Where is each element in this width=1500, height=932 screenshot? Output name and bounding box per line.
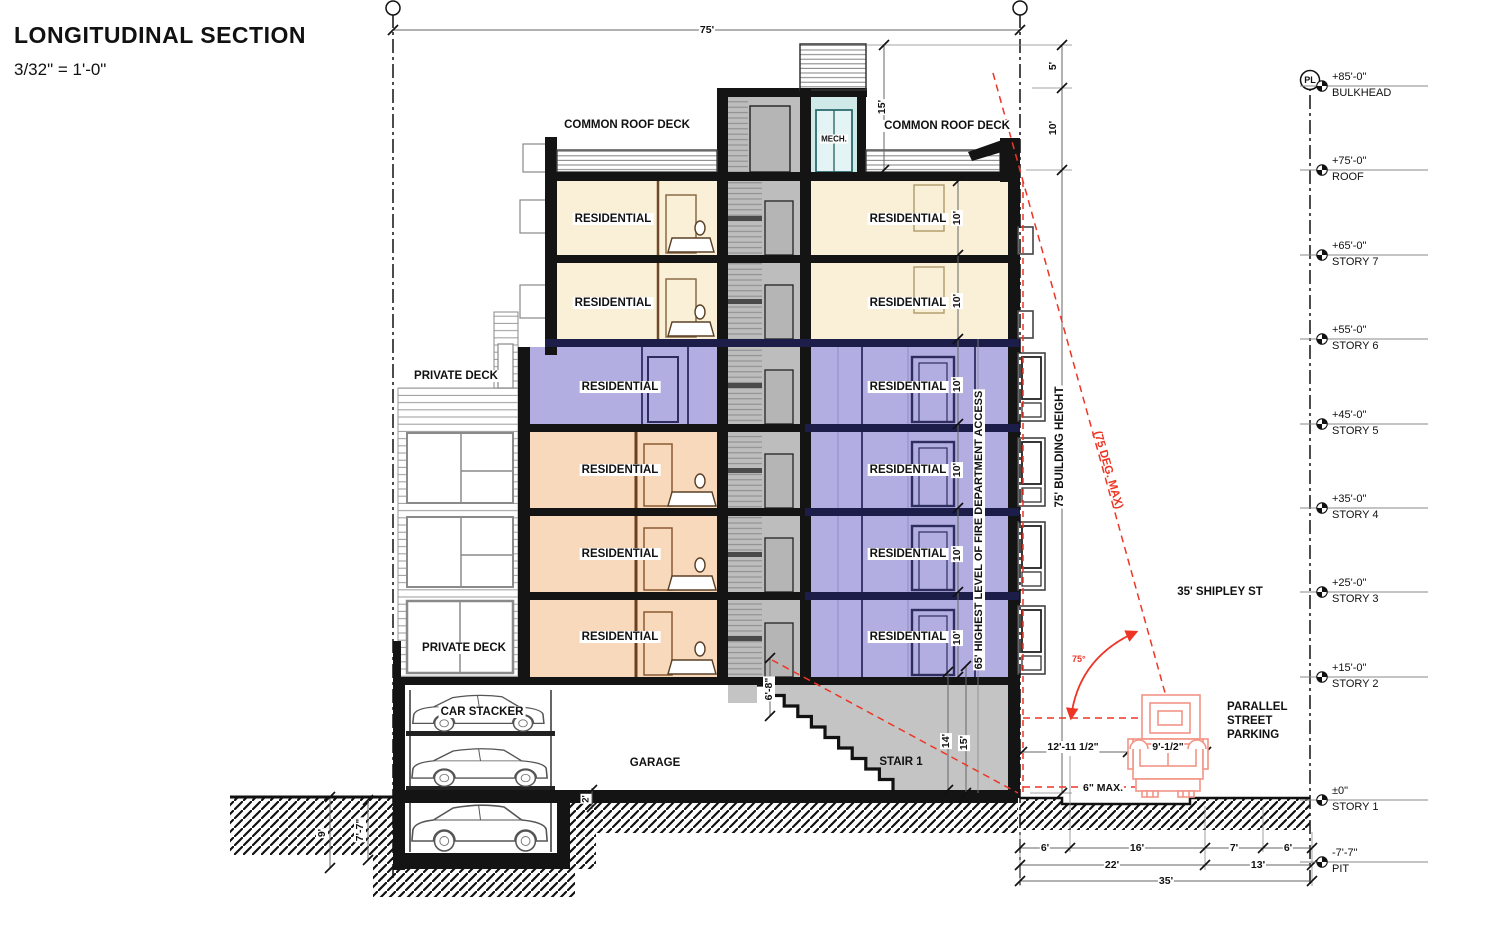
level-name-pit: PIT (1332, 863, 1349, 875)
room-label-residential-5l: RESIDENTIAL (580, 381, 661, 393)
level-name-roof: ROOF (1332, 171, 1364, 183)
level-name-story6: STORY 6 (1332, 340, 1378, 352)
dim-floor-4: 10' (951, 462, 963, 478)
room-label-residential-6l: RESIDENTIAL (573, 297, 654, 309)
note-fire-access: 65' HIGHEST LEVEL OF FIRE DEPARTMENT ACC… (973, 390, 985, 671)
dim-w6b: 6' (1283, 842, 1293, 854)
angle-value: 75° (1072, 654, 1086, 664)
level-name-story7: STORY 7 (1332, 256, 1378, 268)
car-bottom (412, 805, 547, 851)
level-name-story5: STORY 5 (1332, 425, 1378, 437)
dim-truck-width: 9'-1/2" (1151, 741, 1184, 753)
angle-arc (1071, 632, 1136, 718)
level-elev-bulkhead: +85'-0" (1332, 71, 1366, 83)
longitudinal-section-sheet: LONGITUDINAL SECTION 3/32" = 1'-0" 75' C… (0, 0, 1500, 932)
level-elev-story5: +45'-0" (1332, 409, 1366, 421)
room-label-residential-5r: RESIDENTIAL (868, 381, 949, 393)
dim-pit-clear: 7'-7" (354, 818, 366, 843)
dim-overall-width: 75' (699, 24, 715, 36)
dim-floor-2: 10' (951, 630, 963, 646)
level-elev-story4: +35'-0" (1332, 493, 1366, 505)
room-label-roof-deck-right: COMMON ROOF DECK (882, 120, 1012, 132)
dim-stair-head: 6'-8" (763, 677, 775, 702)
level-marker-lines (1300, 86, 1428, 862)
room-label-residential-4r: RESIDENTIAL (868, 464, 949, 476)
level-elev-story3: +25'-0" (1332, 577, 1366, 589)
room-label-residential-3r: RESIDENTIAL (868, 548, 949, 560)
room-label-car-stacker: CAR STACKER (439, 706, 526, 718)
dim-parapet-5: 5' (1047, 61, 1059, 71)
level-name-story4: STORY 4 (1332, 509, 1378, 521)
room-label-residential-6r: RESIDENTIAL (868, 297, 949, 309)
room-label-residential-4l: RESIDENTIAL (580, 464, 661, 476)
dim-w6a: 6' (1040, 842, 1050, 854)
room-label-residential-3l: RESIDENTIAL (580, 548, 661, 560)
dim-floor-5: 10' (951, 377, 963, 393)
dim-w13: 13' (1250, 859, 1266, 871)
dim-floor-6: 10' (951, 293, 963, 309)
curb-note: 6" MAX. (1082, 782, 1124, 794)
room-label-roof-deck-left: COMMON ROOF DECK (562, 119, 692, 131)
dim-bulkhead-10: 10' (1047, 120, 1059, 136)
left-deck-doors-story2 (407, 601, 513, 673)
dim-truck-offset: 12'-11 1/2" (1046, 741, 1099, 753)
room-label-mech: MECH. (820, 135, 848, 144)
dim-stair-14: 14' (940, 733, 952, 749)
section-drawing (0, 0, 1500, 932)
dim-slab-step: 2' (581, 794, 592, 804)
left-window-story3 (407, 517, 513, 587)
level-marker-symbols (1317, 81, 1327, 867)
level-name-story1: STORY 1 (1332, 801, 1378, 813)
dim-stair-15: 15' (958, 735, 970, 751)
dim-floor-7: 10' (951, 210, 963, 226)
level-name-bulkhead: BULKHEAD (1332, 87, 1391, 99)
level-elev-pit: -7'-7" (1332, 847, 1358, 859)
level-elev-story7: +65'-0" (1332, 240, 1366, 252)
dim-bulkhead-height: 15' (876, 99, 888, 115)
sheet-scale: 3/32" = 1'-0" (14, 60, 106, 80)
room-label-stair1: STAIR 1 (877, 756, 924, 768)
room-label-private-deck-upper: PRIVATE DECK (412, 370, 500, 382)
dim-pit-depth: 9' (316, 828, 328, 838)
level-elev-story6: +55'-0" (1332, 324, 1366, 336)
right-facade-bays (1018, 227, 1045, 674)
level-name-story2: STORY 2 (1332, 678, 1378, 690)
car-middle (412, 749, 547, 787)
dim-w22: 22' (1104, 859, 1120, 871)
dim-w7: 7' (1229, 842, 1239, 854)
note-building-height: 75' BUILDING HEIGHT (1054, 386, 1066, 509)
level-elev-story1: ±0" (1332, 785, 1348, 797)
room-label-residential-2l: RESIDENTIAL (580, 631, 661, 643)
level-elev-roof: +75'-0" (1332, 155, 1366, 167)
ground-hatching (230, 797, 1310, 897)
room-label-residential-7r: RESIDENTIAL (868, 213, 949, 225)
sheet-title: LONGITUDINAL SECTION (14, 22, 306, 49)
parking-note: PARALLEL STREET PARKING (1227, 700, 1287, 742)
left-window-story4 (407, 433, 513, 503)
dim-w35: 35' (1158, 875, 1174, 887)
dim-w16: 16' (1129, 842, 1145, 854)
level-name-story3: STORY 3 (1332, 593, 1378, 605)
room-label-residential-7l: RESIDENTIAL (573, 213, 654, 225)
pl-label: PL (1304, 75, 1316, 85)
level-elev-story2: +15'-0" (1332, 662, 1366, 674)
room-label-residential-2r: RESIDENTIAL (868, 631, 949, 643)
room-label-garage: GARAGE (628, 757, 682, 769)
room-label-private-deck-lower: PRIVATE DECK (420, 642, 508, 654)
dim-floor-3: 10' (951, 546, 963, 562)
street-name: 35' SHIPLEY ST (1175, 586, 1265, 598)
